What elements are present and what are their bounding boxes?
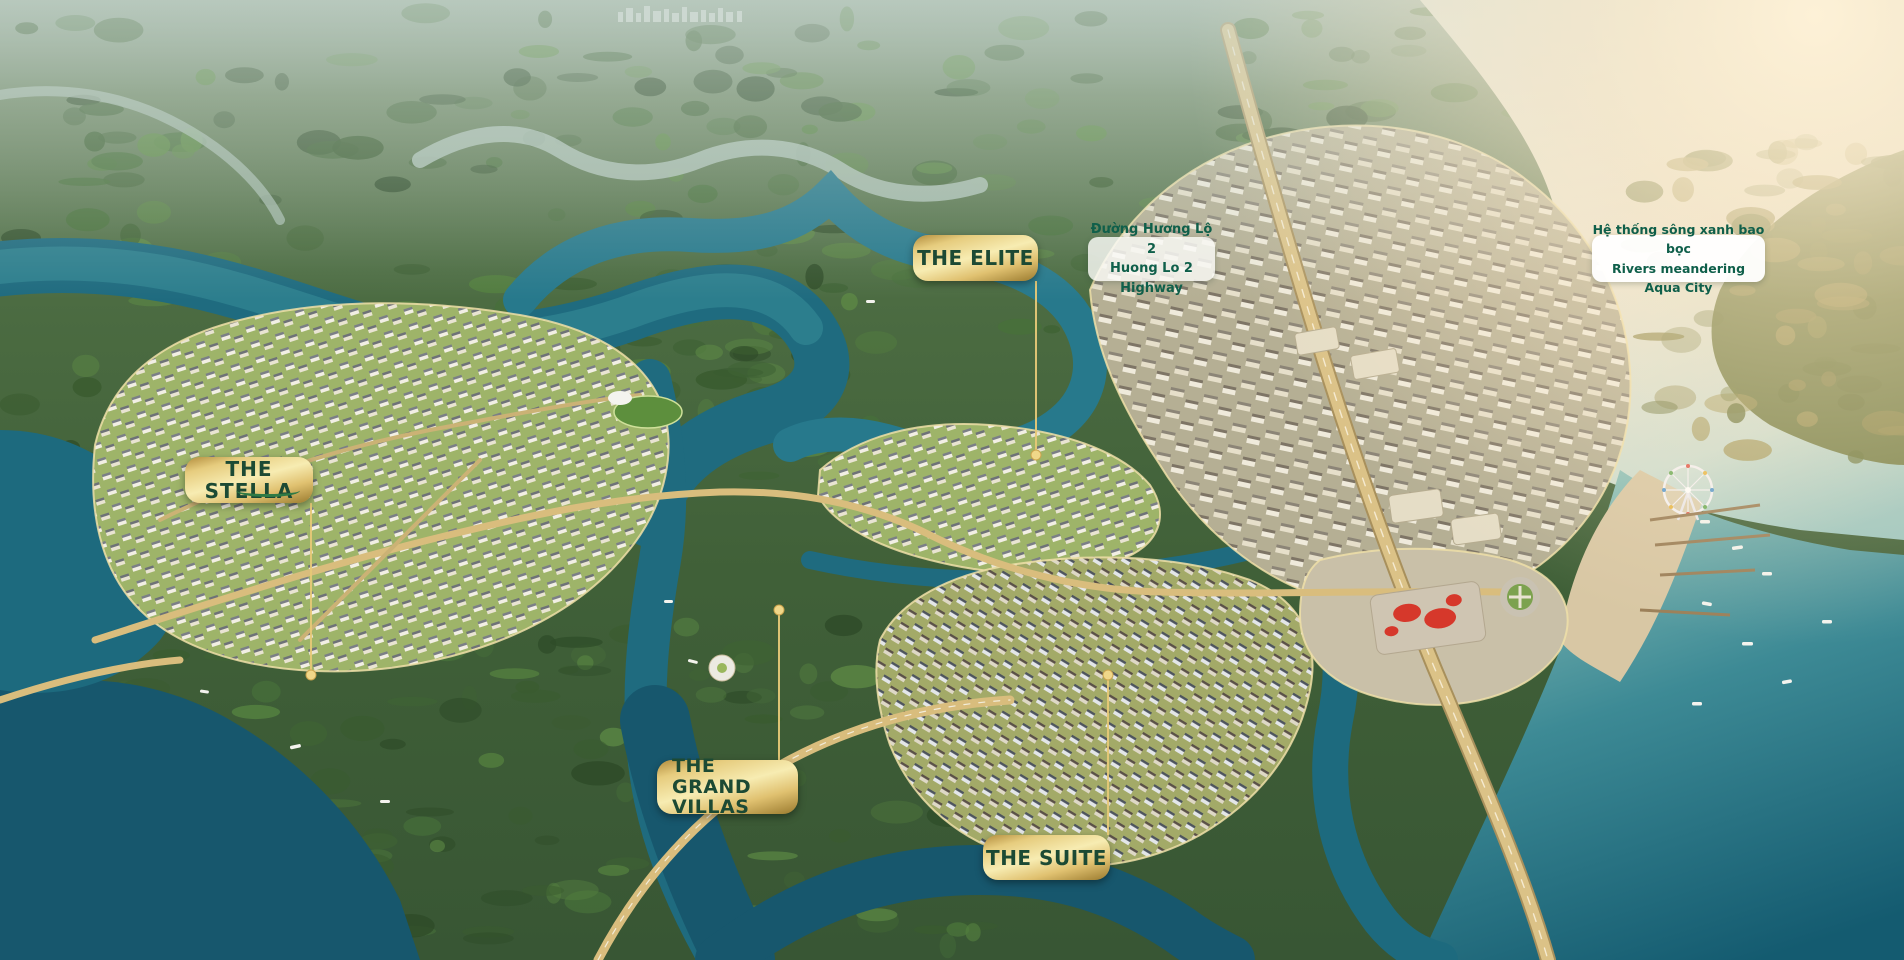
- stella-swoosh-icon: [236, 484, 300, 497]
- zone-label-the-suite[interactable]: THE SUITE: [983, 835, 1110, 880]
- zone-label-text: THE SUITE: [986, 847, 1107, 869]
- note-line-english: Huong Lo 2 Highway: [1088, 259, 1215, 298]
- note-line-english: Rivers meandering Aqua City: [1592, 259, 1765, 298]
- zone-label-text-line1: THE GRAND: [672, 756, 798, 798]
- zone-label-the-elite[interactable]: THE ELITE: [913, 235, 1038, 281]
- zone-label-the-grand-villas[interactable]: THE GRAND VILLAS: [657, 760, 798, 814]
- zone-label-the-stella[interactable]: THE STELLA: [185, 457, 313, 503]
- zone-label-text-line2: VILLAS: [672, 797, 749, 818]
- note-huong-lo-2-highway: Đường Hương Lộ 2 Huong Lo 2 Highway: [1088, 237, 1215, 281]
- note-line-vietnamese: Đường Hương Lộ 2: [1088, 220, 1215, 259]
- note-rivers-meandering: Hệ thống sông xanh bao bọc Rivers meande…: [1592, 235, 1765, 282]
- note-line-vietnamese: Hệ thống sông xanh bao bọc: [1592, 220, 1765, 259]
- masterplan-stage: THE ELITE THE STELLA THE GRAND VILLAS TH…: [0, 0, 1904, 960]
- zone-label-text: THE ELITE: [917, 247, 1034, 269]
